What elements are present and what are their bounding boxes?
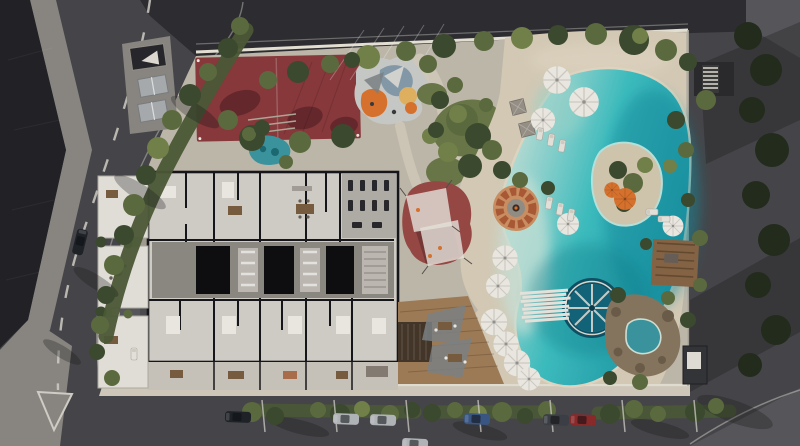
aerial-site-render [0,0,800,446]
site-plan-svg [0,0,800,446]
vignette [0,0,800,446]
